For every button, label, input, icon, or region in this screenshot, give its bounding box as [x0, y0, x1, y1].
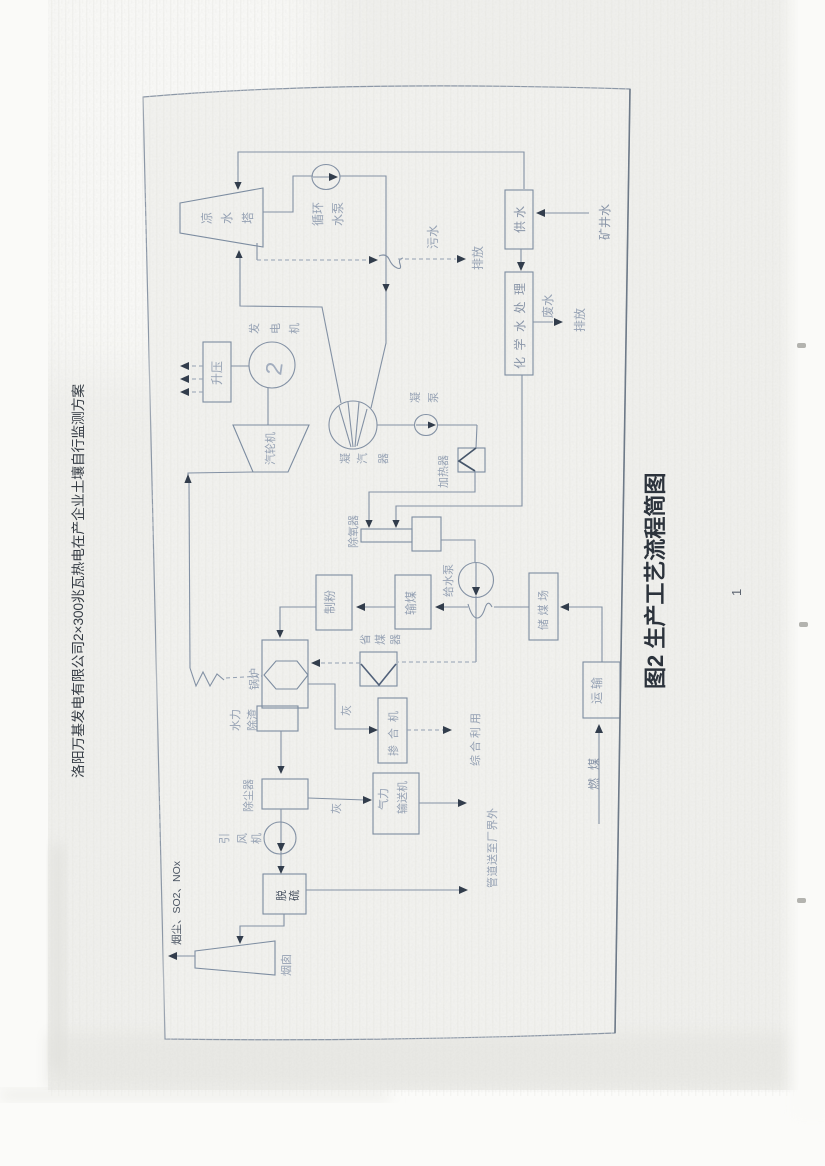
svg-text:凝: 凝	[338, 453, 352, 464]
svg-text:水: 水	[220, 212, 234, 224]
svg-text:除氧器: 除氧器	[346, 515, 360, 548]
svg-text:除尘器: 除尘器	[241, 779, 255, 812]
svg-text:气力: 气力	[376, 788, 390, 810]
svg-text:水泵: 水泵	[331, 202, 345, 226]
svg-text:器: 器	[377, 453, 390, 464]
svg-text:制粉: 制粉	[323, 590, 337, 614]
svg-text:矿井水: 矿井水	[598, 204, 612, 240]
svg-text:储煤场: 储煤场	[536, 587, 550, 631]
svg-text:给水泵: 给水泵	[442, 564, 455, 597]
svg-text:废水: 废水	[540, 294, 555, 318]
svg-text:洛阳万基发电有限公司2×300兆瓦热电在产企业土壤自行监测方: 洛阳万基发电有限公司2×300兆瓦热电在产企业土壤自行监测方案	[70, 384, 86, 778]
svg-text:输煤: 输煤	[403, 591, 418, 615]
svg-text:省: 省	[359, 634, 372, 645]
svg-text:泵: 泵	[427, 392, 440, 403]
svg-text:硫: 硫	[287, 890, 301, 901]
svg-text:掺合机: 掺合机	[386, 705, 400, 756]
svg-text:引: 引	[217, 833, 231, 844]
svg-text:煤: 煤	[374, 634, 387, 645]
svg-text:汽: 汽	[355, 453, 369, 464]
svg-text:器: 器	[389, 634, 402, 645]
svg-text:机: 机	[287, 323, 301, 334]
svg-text:凉: 凉	[199, 212, 214, 224]
svg-text:1: 1	[729, 589, 744, 596]
svg-text:风: 风	[236, 833, 249, 844]
svg-text:运输: 运输	[589, 674, 604, 704]
svg-text:烟尘、SO2、NOx: 烟尘、SO2、NOx	[170, 860, 183, 945]
svg-text:污水: 污水	[426, 225, 440, 249]
svg-text:输送机: 输送机	[395, 781, 409, 814]
svg-text:电: 电	[269, 323, 282, 334]
svg-text:供水: 供水	[513, 203, 527, 233]
svg-text:凝: 凝	[408, 392, 422, 403]
svg-text:塔: 塔	[241, 212, 255, 224]
svg-text:水力: 水力	[229, 709, 242, 731]
svg-text:排放: 排放	[470, 246, 485, 270]
svg-text:加热器: 加热器	[437, 455, 450, 488]
svg-text:升压: 升压	[210, 361, 224, 385]
svg-text:发: 发	[247, 323, 261, 334]
svg-text:烟囱: 烟囱	[279, 954, 293, 976]
svg-text:锅炉: 锅炉	[248, 668, 261, 690]
svg-text:脱: 脱	[274, 890, 288, 901]
svg-text:灰: 灰	[329, 803, 343, 814]
svg-text:汽轮机: 汽轮机	[263, 432, 277, 465]
svg-text:管道送至厂界外: 管道送至厂界外	[485, 808, 499, 889]
svg-text:机: 机	[249, 833, 263, 844]
svg-text:除渣: 除渣	[245, 709, 259, 731]
svg-text:图2 生产工艺流程简图: 图2 生产工艺流程简图	[643, 473, 668, 689]
svg-text:循环: 循环	[311, 202, 325, 226]
svg-text:排放: 排放	[572, 308, 587, 332]
svg-text:化学水处理: 化学水处理	[512, 276, 527, 369]
svg-text:综合利用: 综合利用	[468, 710, 482, 766]
svg-text:灰: 灰	[339, 705, 353, 716]
svg-text:燃煤: 燃煤	[586, 750, 601, 790]
